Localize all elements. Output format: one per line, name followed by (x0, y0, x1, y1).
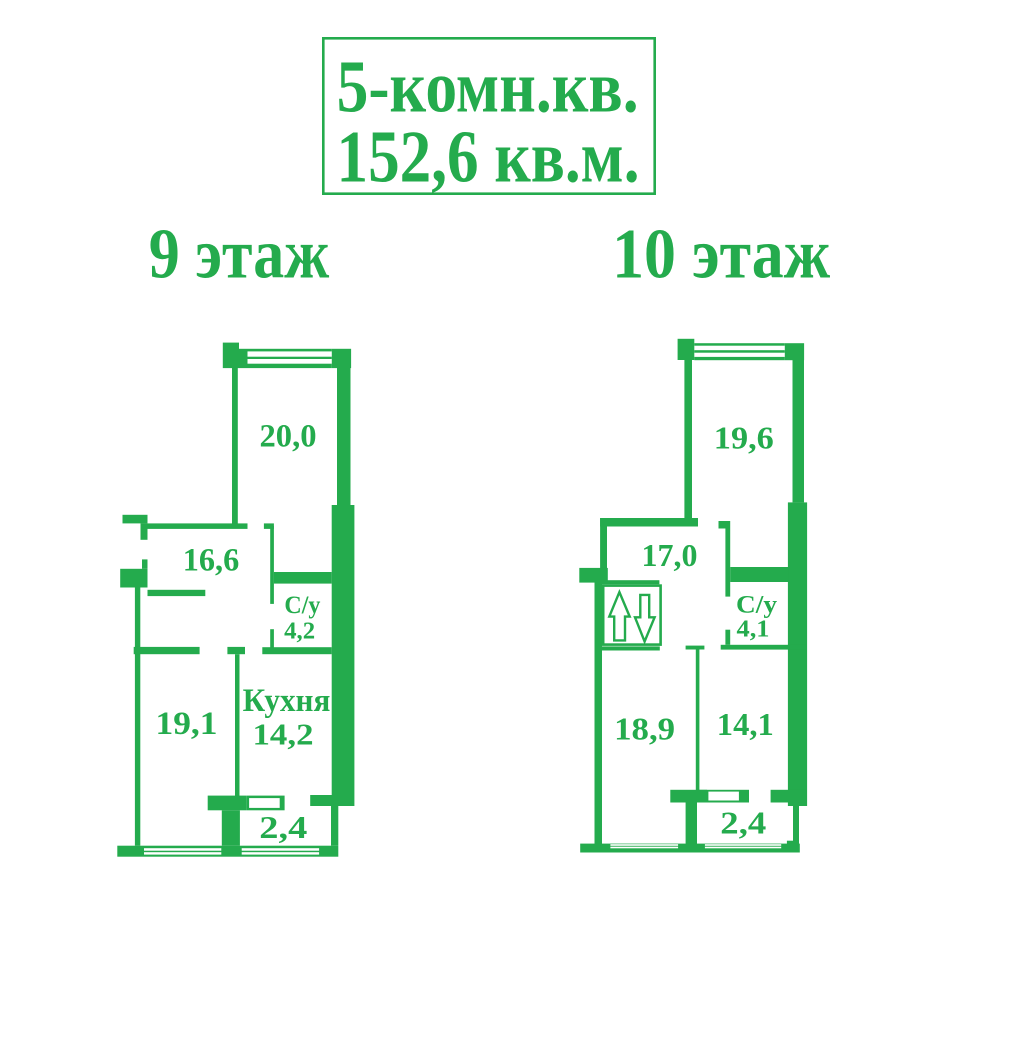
svg-text:2,4: 2,4 (720, 805, 766, 841)
svg-text:14,1: 14,1 (717, 706, 774, 742)
svg-text:17,0: 17,0 (642, 537, 698, 573)
svg-text:152,6 кв.м.: 152,6 кв.м. (337, 116, 640, 198)
svg-text:4,1: 4,1 (737, 617, 770, 643)
svg-text:2,4: 2,4 (259, 809, 307, 845)
svg-text:16,6: 16,6 (183, 543, 240, 579)
svg-text:10 этаж: 10 этаж (612, 215, 830, 293)
svg-text:Кухня: Кухня (243, 682, 331, 719)
svg-text:18,9: 18,9 (614, 710, 675, 746)
svg-text:20,0: 20,0 (260, 418, 317, 454)
svg-text:19,1: 19,1 (156, 706, 218, 742)
svg-text:19,6: 19,6 (714, 420, 774, 456)
svg-text:14,2: 14,2 (253, 717, 314, 752)
svg-text:4,2: 4,2 (284, 618, 315, 644)
svg-text:С/у: С/у (736, 592, 778, 619)
svg-text:С/у: С/у (284, 592, 321, 619)
svg-text:9 этаж: 9 этаж (149, 215, 330, 293)
